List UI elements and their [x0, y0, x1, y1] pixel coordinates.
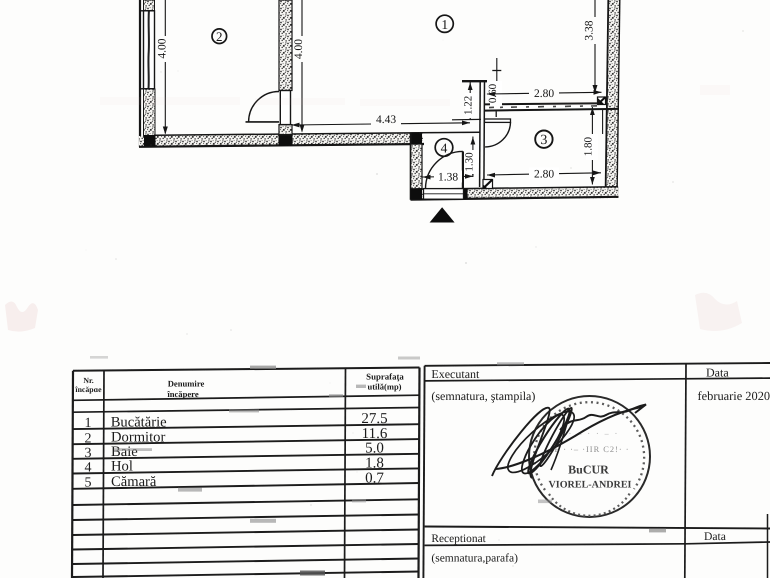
svg-text:4.00: 4.00: [156, 38, 168, 58]
svg-text:Bucătărie: Bucătărie: [111, 414, 167, 430]
svg-text:4.43: 4.43: [376, 114, 396, 126]
svg-text:3: 3: [540, 133, 547, 148]
svg-text:1: 1: [85, 416, 92, 431]
svg-text:1.22: 1.22: [463, 96, 475, 115]
svg-text:Nr.: Nr.: [83, 376, 93, 385]
svg-text:1: 1: [441, 17, 448, 32]
svg-text:(semnatura,parafa): (semnatura,parafa): [431, 552, 518, 564]
svg-text:Data: Data: [704, 530, 726, 543]
svg-text:Baie: Baie: [111, 444, 138, 460]
svg-text:VIOREL-ANDREI: VIOREL-ANDREI: [548, 479, 631, 490]
svg-text:BuCUR: BuCUR: [568, 463, 609, 477]
svg-text:încăpere: încăpere: [166, 389, 199, 399]
svg-text:Dormitor: Dormitor: [111, 429, 165, 445]
svg-text:(semnatura, ştampila): (semnatura, ştampila): [431, 389, 535, 403]
svg-text:2.80: 2.80: [534, 168, 554, 180]
svg-text:1.8: 1.8: [365, 455, 384, 471]
svg-text:5.0: 5.0: [365, 441, 384, 457]
svg-text:Denumire: Denumire: [168, 379, 205, 389]
svg-text:3.38: 3.38: [584, 20, 596, 40]
svg-text:· – · · – ·: · – · · – ·: [569, 429, 620, 438]
svg-text:0.7: 0.7: [365, 471, 384, 487]
svg-text:2: 2: [85, 431, 92, 446]
svg-text:Receptionat: Receptionat: [431, 533, 486, 545]
svg-text:3: 3: [85, 446, 92, 461]
svg-text:5: 5: [85, 476, 92, 491]
svg-text:2.80: 2.80: [534, 88, 554, 100]
svg-text:1.30: 1.30: [463, 152, 475, 172]
svg-text:4: 4: [441, 141, 448, 156]
svg-text:utilă(mp): utilă(mp): [368, 382, 402, 392]
svg-text:Executant: Executant: [431, 367, 480, 381]
svg-text:27.5: 27.5: [361, 411, 387, 427]
svg-text:februarie 2020: februarie 2020: [698, 389, 770, 403]
svg-text:4.00: 4.00: [293, 39, 305, 59]
svg-text:Data: Data: [706, 366, 729, 380]
svg-text:4: 4: [85, 461, 92, 476]
svg-text:1.80: 1.80: [582, 136, 594, 156]
svg-text:Hol: Hol: [111, 459, 133, 475]
svg-text:încăpɑe: încăpɑe: [74, 385, 102, 394]
svg-text:2: 2: [216, 29, 223, 44]
svg-text:Suprafaţa: Suprafaţa: [366, 372, 404, 382]
svg-text:11.6: 11.6: [362, 426, 388, 442]
svg-text:1.38: 1.38: [438, 171, 458, 183]
svg-text:F · ·– ·IIR C2!· ·: F · ·– ·IIR C2!· ·: [555, 445, 630, 454]
svg-text:Cămară: Cămară: [111, 474, 157, 490]
